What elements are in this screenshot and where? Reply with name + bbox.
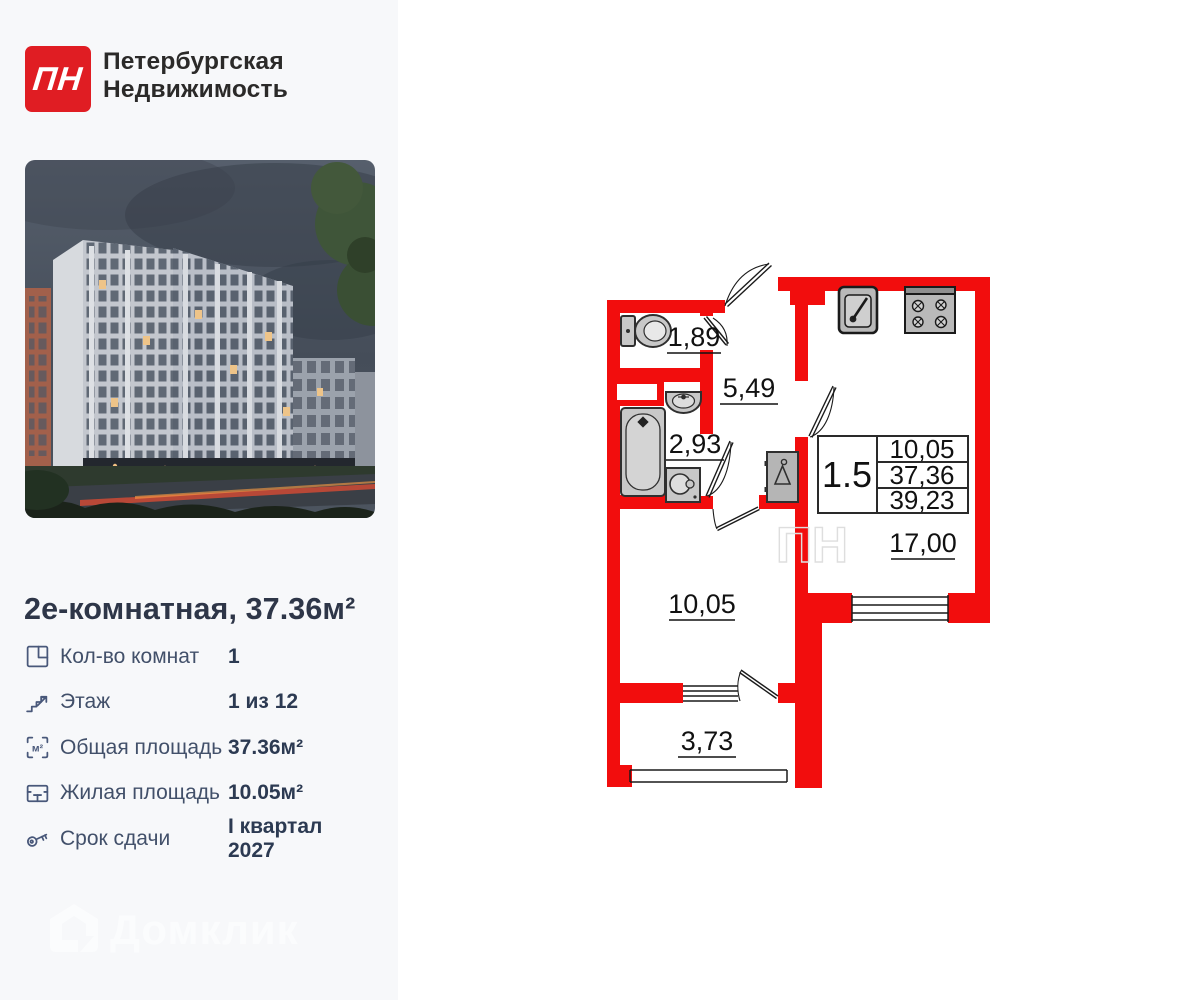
kitchen-sink-icon [839, 287, 877, 333]
wc-area-label: 1,89 [668, 322, 721, 352]
entrance-door [725, 263, 772, 307]
washing-machine-icon [666, 468, 700, 502]
bathroom-sink-icon [666, 392, 701, 413]
floorplan-area: ПН 1,89 5,49 2,93 10,05 3,73 17,00 [398, 0, 1200, 1000]
bedroom-window [683, 683, 738, 703]
bathtub-icon [621, 408, 665, 496]
floorplan: ПН 1,89 5,49 2,93 10,05 3,73 17,00 [0, 0, 1200, 1000]
wardrobe-icon [765, 452, 799, 502]
total-with-balcony-value: 39,23 [889, 485, 954, 515]
kitchen-window [852, 593, 948, 623]
bedroom-area-label: 10,05 [668, 589, 736, 619]
listing-card: ПН Петербургская Недвижимость [0, 0, 1200, 1000]
balcony-door [738, 670, 778, 701]
apartment-info-table: 1.5 10,05 37,36 39,23 [818, 434, 968, 515]
plan-watermark: ПН [776, 517, 848, 573]
bedroom-door [713, 507, 760, 531]
toilet-icon [621, 315, 671, 347]
hallway-area-label: 5,49 [723, 373, 776, 403]
kitchen-door [809, 386, 836, 438]
kitchen-area-label: 17,00 [889, 528, 957, 558]
balcony-area-label: 3,73 [681, 726, 734, 756]
bathroom-area-label: 2,93 [669, 429, 722, 459]
stove-icon [905, 287, 955, 333]
apartment-type: 1.5 [822, 454, 872, 495]
balcony-glazing [630, 770, 787, 782]
